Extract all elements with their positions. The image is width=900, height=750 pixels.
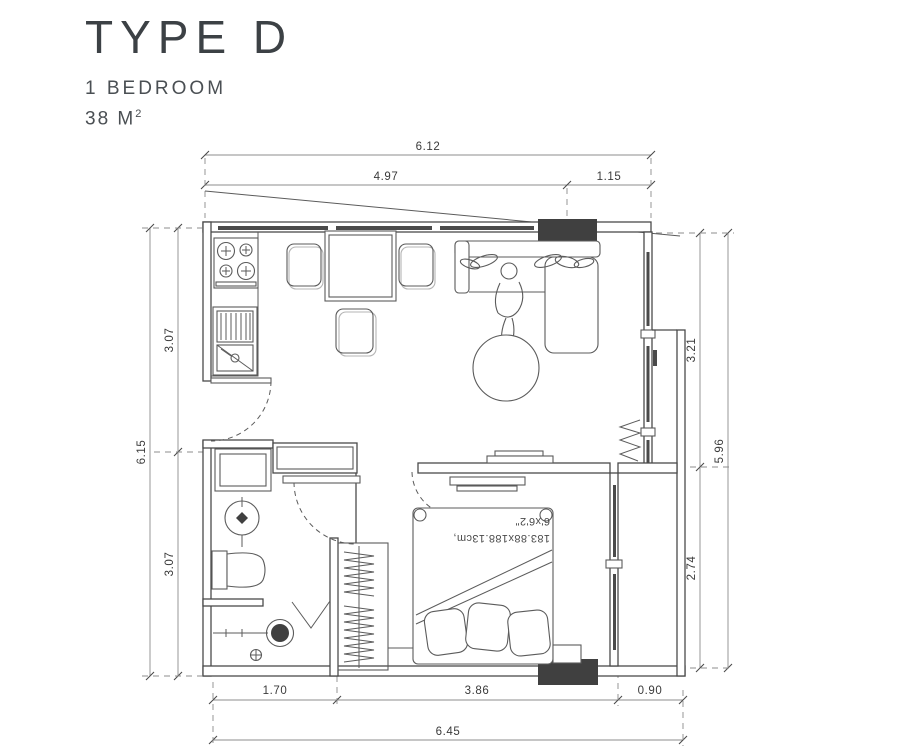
pillow	[423, 607, 469, 656]
wall-left-upper	[203, 222, 211, 381]
kitchen-stove	[214, 238, 258, 288]
washer-cabinet	[215, 449, 271, 491]
dim-bottom-left: 1.70	[263, 685, 288, 697]
shower-drain-head	[271, 624, 289, 642]
pillow	[507, 609, 551, 657]
svg-text:6'x6'2": 6'x6'2"	[515, 515, 550, 527]
hallway	[283, 476, 360, 483]
dim-top-left: 4.97	[374, 171, 399, 183]
dim-left-upper: 3.07	[164, 328, 176, 353]
dim-left-lower: 3.07	[164, 552, 176, 577]
wall-wardrobe-left	[330, 538, 338, 676]
dim-bottom-total: 6.45	[436, 726, 461, 738]
dining-area	[287, 231, 435, 356]
dim-top-total: 6.12	[416, 141, 441, 153]
svg-text:183.88x188.13cm,: 183.88x188.13cm,	[453, 532, 550, 544]
wardrobe	[338, 543, 413, 670]
floor-plan-svg: 6.12 4.97 1.15 6.15 3.07 3.07	[0, 0, 900, 750]
tv-shelf-bedroom-side	[450, 477, 525, 491]
sofa	[455, 241, 600, 353]
dining-chair-right	[399, 244, 433, 286]
living-room	[455, 241, 640, 461]
wall-bedroom-top-bay	[618, 463, 677, 473]
dim-right-upper: 3.21	[686, 338, 698, 363]
dim-left-total: 6.15	[136, 440, 148, 465]
ac-drain-squiggle	[620, 420, 640, 461]
dining-table	[325, 231, 396, 301]
toilet	[212, 551, 265, 589]
kitchen	[211, 232, 258, 376]
washbasin	[225, 497, 259, 547]
nightstand	[553, 645, 581, 663]
dim-bottom-middle: 3.86	[465, 685, 490, 697]
wall-bedroom-top	[418, 463, 610, 473]
wall-bay-right	[677, 330, 685, 676]
dim-bottom-right: 0.90	[638, 685, 663, 697]
pillow	[465, 602, 512, 652]
wall-left-lower	[203, 441, 211, 676]
dining-chair-bottom	[336, 309, 373, 353]
floor-plan-page: TYPE D 1 BEDROOM 38 M2 6.12 4.97 1.15	[0, 0, 900, 750]
dining-chair-left	[287, 244, 321, 286]
bedroom: 183.88x188.13cm, 6'x6'2"	[413, 451, 581, 664]
bathroom-door	[294, 473, 356, 544]
shower	[203, 599, 330, 661]
tv-shelf-living-side	[487, 451, 553, 463]
hall-shelf	[283, 476, 360, 483]
coffee-table	[473, 335, 539, 401]
dim-right-total: 5.96	[714, 439, 726, 464]
bed: 183.88x188.13cm, 6'x6'2"	[413, 508, 553, 664]
wall-bottom	[203, 666, 685, 676]
entrance-door	[211, 378, 271, 441]
kitchen-sink	[213, 307, 257, 375]
dim-top-right: 1.15	[597, 171, 622, 183]
dim-right-lower: 2.74	[686, 556, 698, 581]
